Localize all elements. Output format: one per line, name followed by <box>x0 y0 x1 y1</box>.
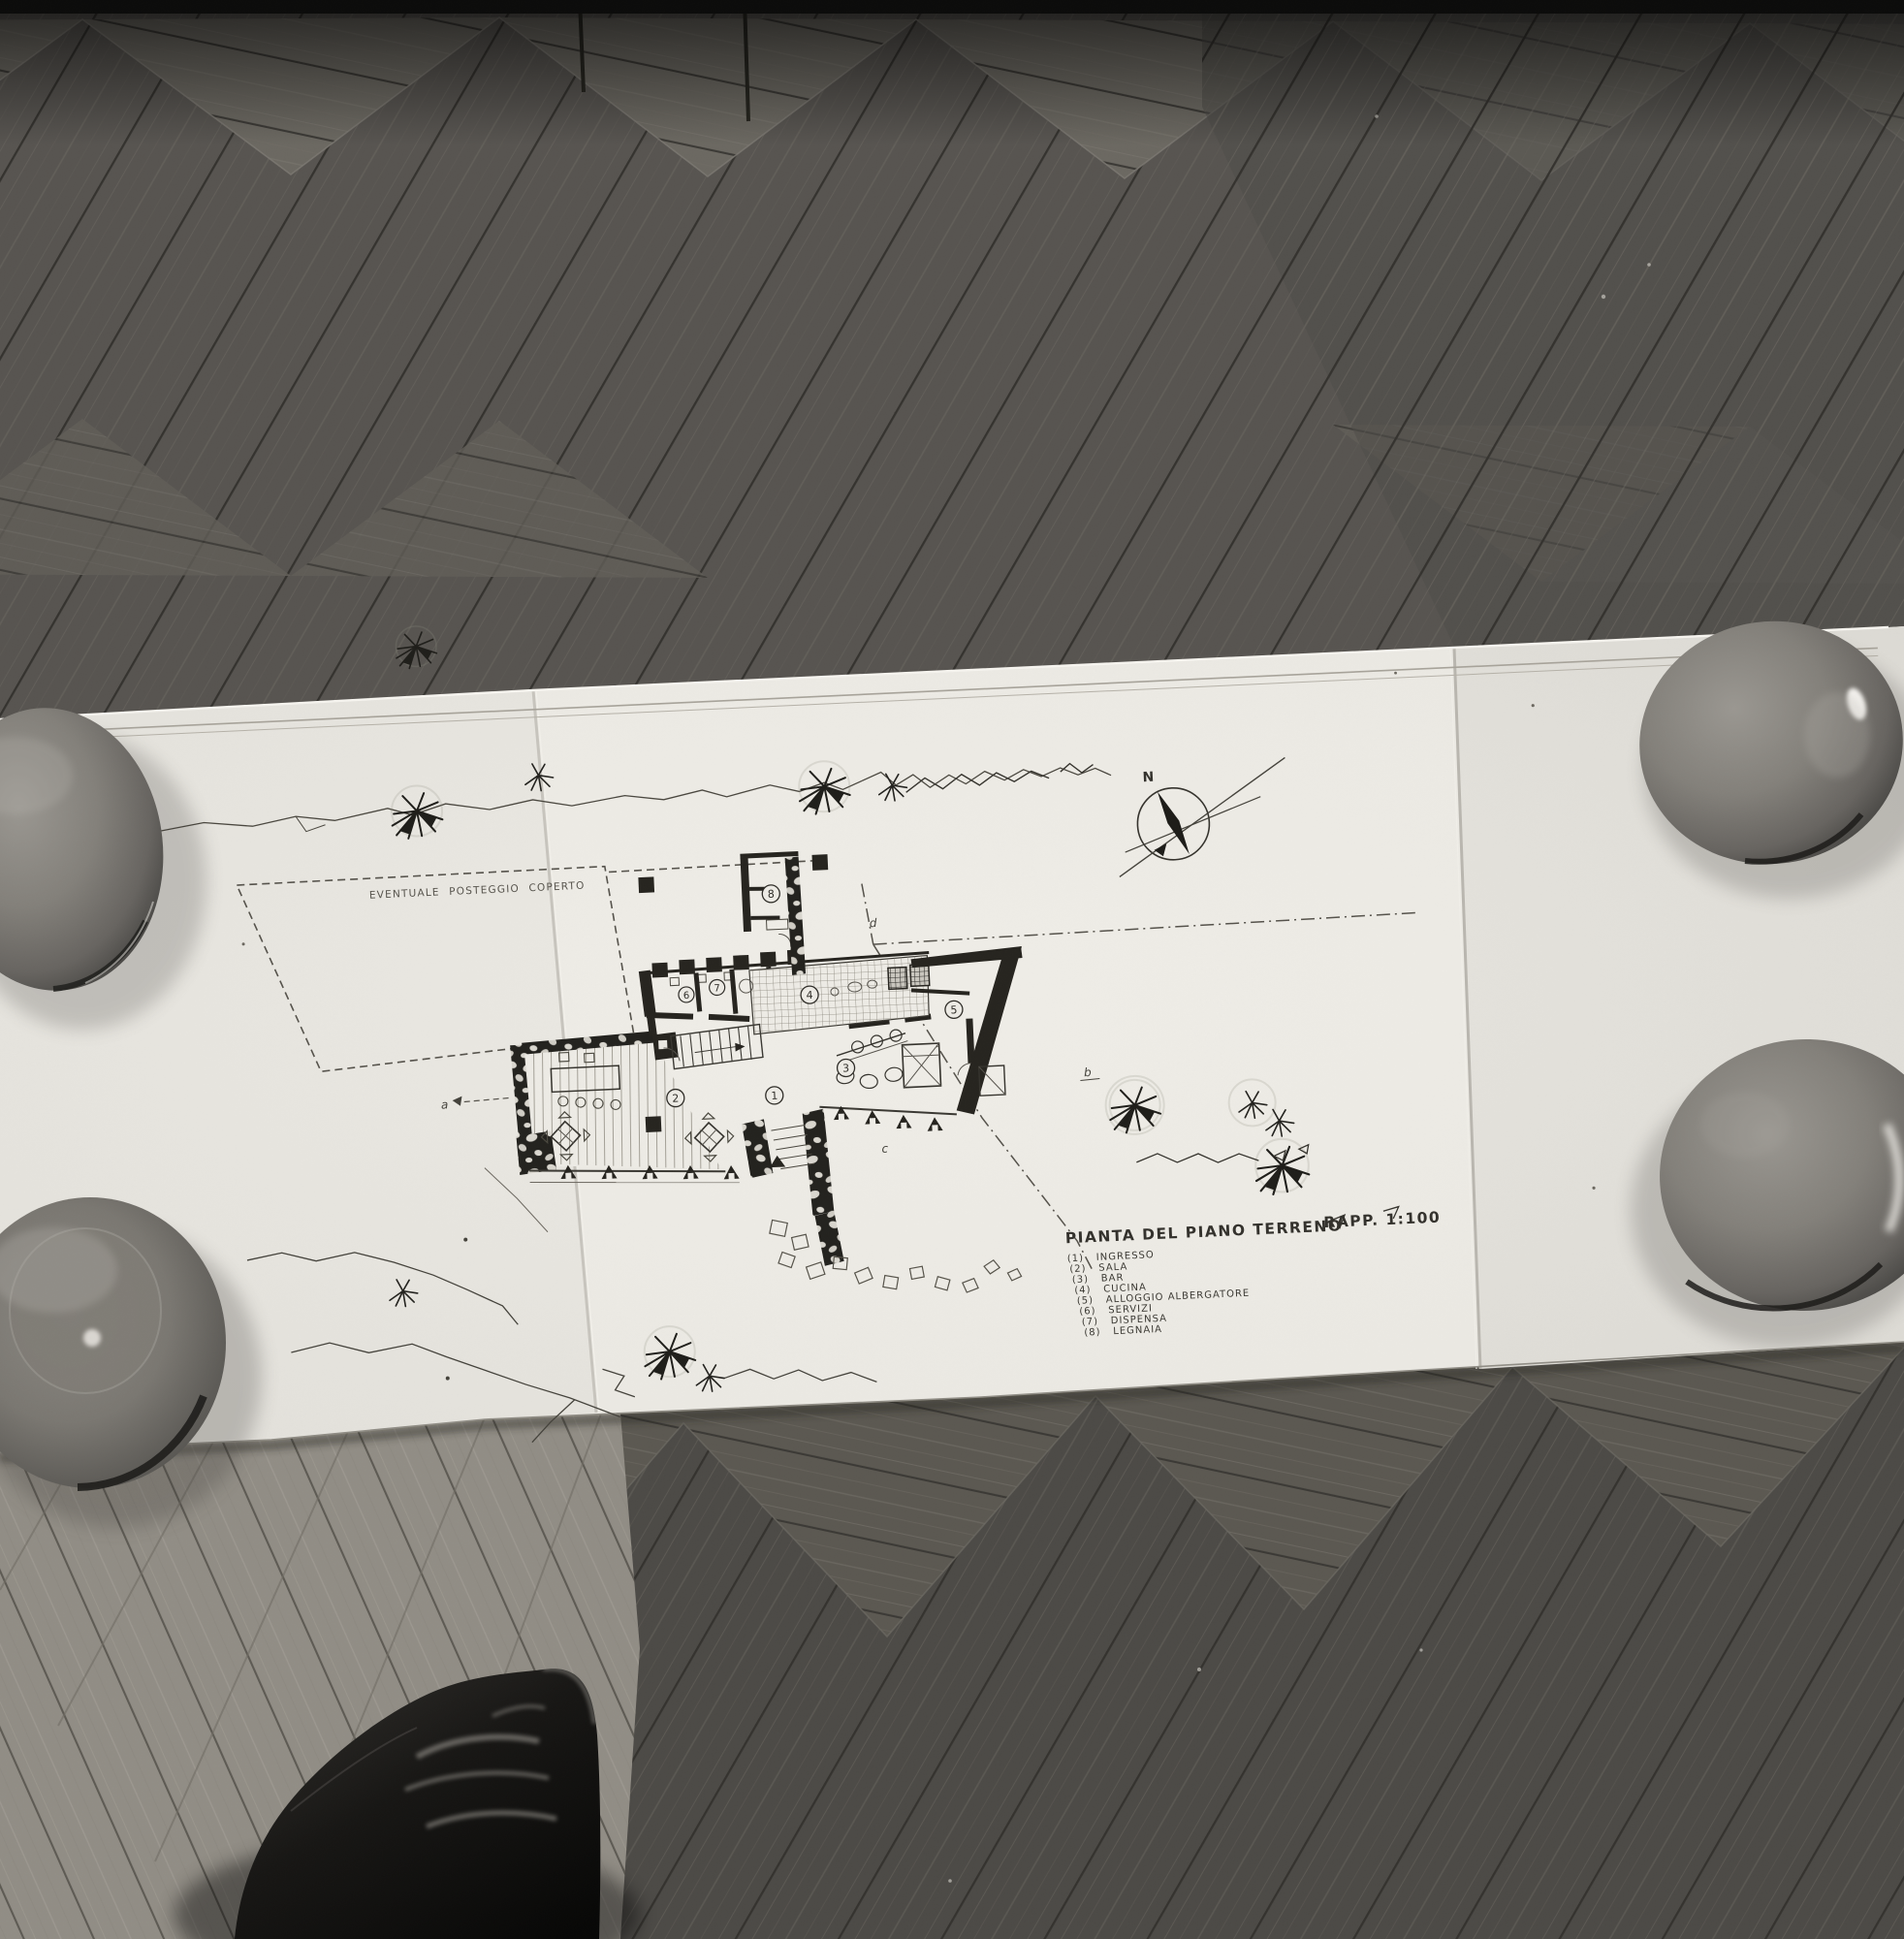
photo-scene: N EVENTUALE POSTEGGIO COPERTO <box>0 0 1904 1939</box>
film-grain-overlay <box>0 0 1904 1939</box>
